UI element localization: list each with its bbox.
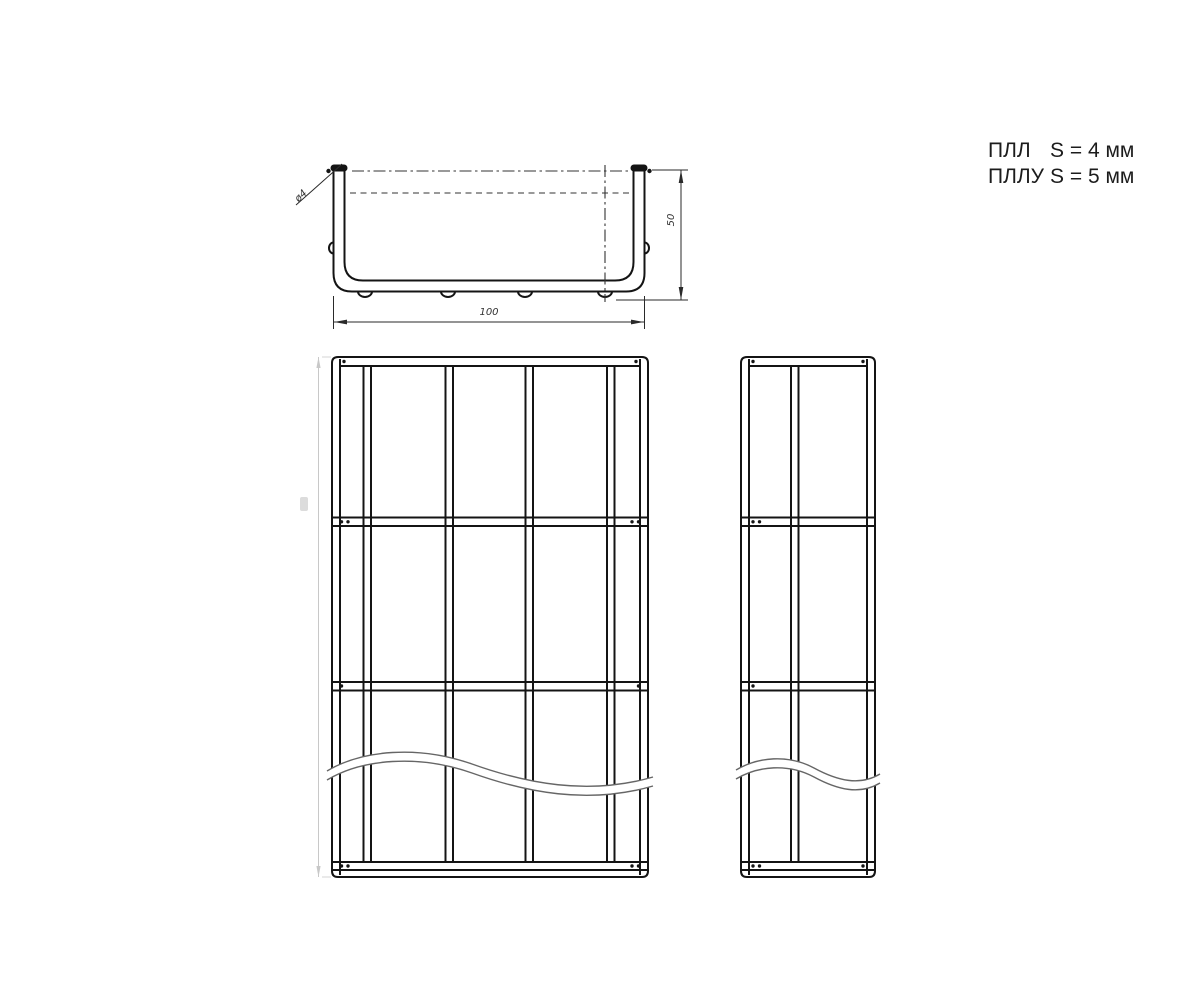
side-rungs [742, 366, 874, 870]
u-profile-wire [334, 168, 645, 292]
height-dimension [616, 170, 688, 300]
note-line-pll: ПЛЛ S = 4 мм [988, 138, 1134, 164]
side-weld-dots [751, 360, 864, 868]
side-longitudinal-wires [749, 359, 867, 875]
width-dimension-label: 100 [479, 307, 498, 318]
front-view [327, 357, 653, 877]
side-break-line [736, 759, 880, 790]
front-longitudinal-wires [340, 359, 640, 875]
note-value: S = 4 мм [1050, 138, 1134, 164]
length-dimension-faint [300, 357, 331, 877]
wire-diameter-callout: ø4 [292, 164, 342, 205]
note-value: S = 5 мм [1050, 164, 1134, 190]
front-break-line [327, 752, 653, 795]
wire-top-caps [326, 165, 651, 174]
side-wire-bumps [329, 243, 649, 254]
note-line-pllu: ПЛЛУ S = 5 мм [988, 164, 1134, 190]
height-dimension-label: 50 [666, 214, 677, 227]
notes-block: ПЛЛ S = 4 мм ПЛЛУ S = 5 мм [988, 138, 1134, 190]
wire-diameter-label: ø4 [292, 188, 309, 205]
note-code: ПЛЛ [988, 138, 1050, 164]
front-outer-frame [332, 357, 648, 877]
note-code: ПЛЛУ [988, 164, 1050, 190]
side-view [736, 357, 880, 877]
section-view: 100 50 ø4 [292, 164, 688, 329]
length-dimension-smudge [300, 497, 308, 511]
side-outer-frame [741, 357, 875, 877]
